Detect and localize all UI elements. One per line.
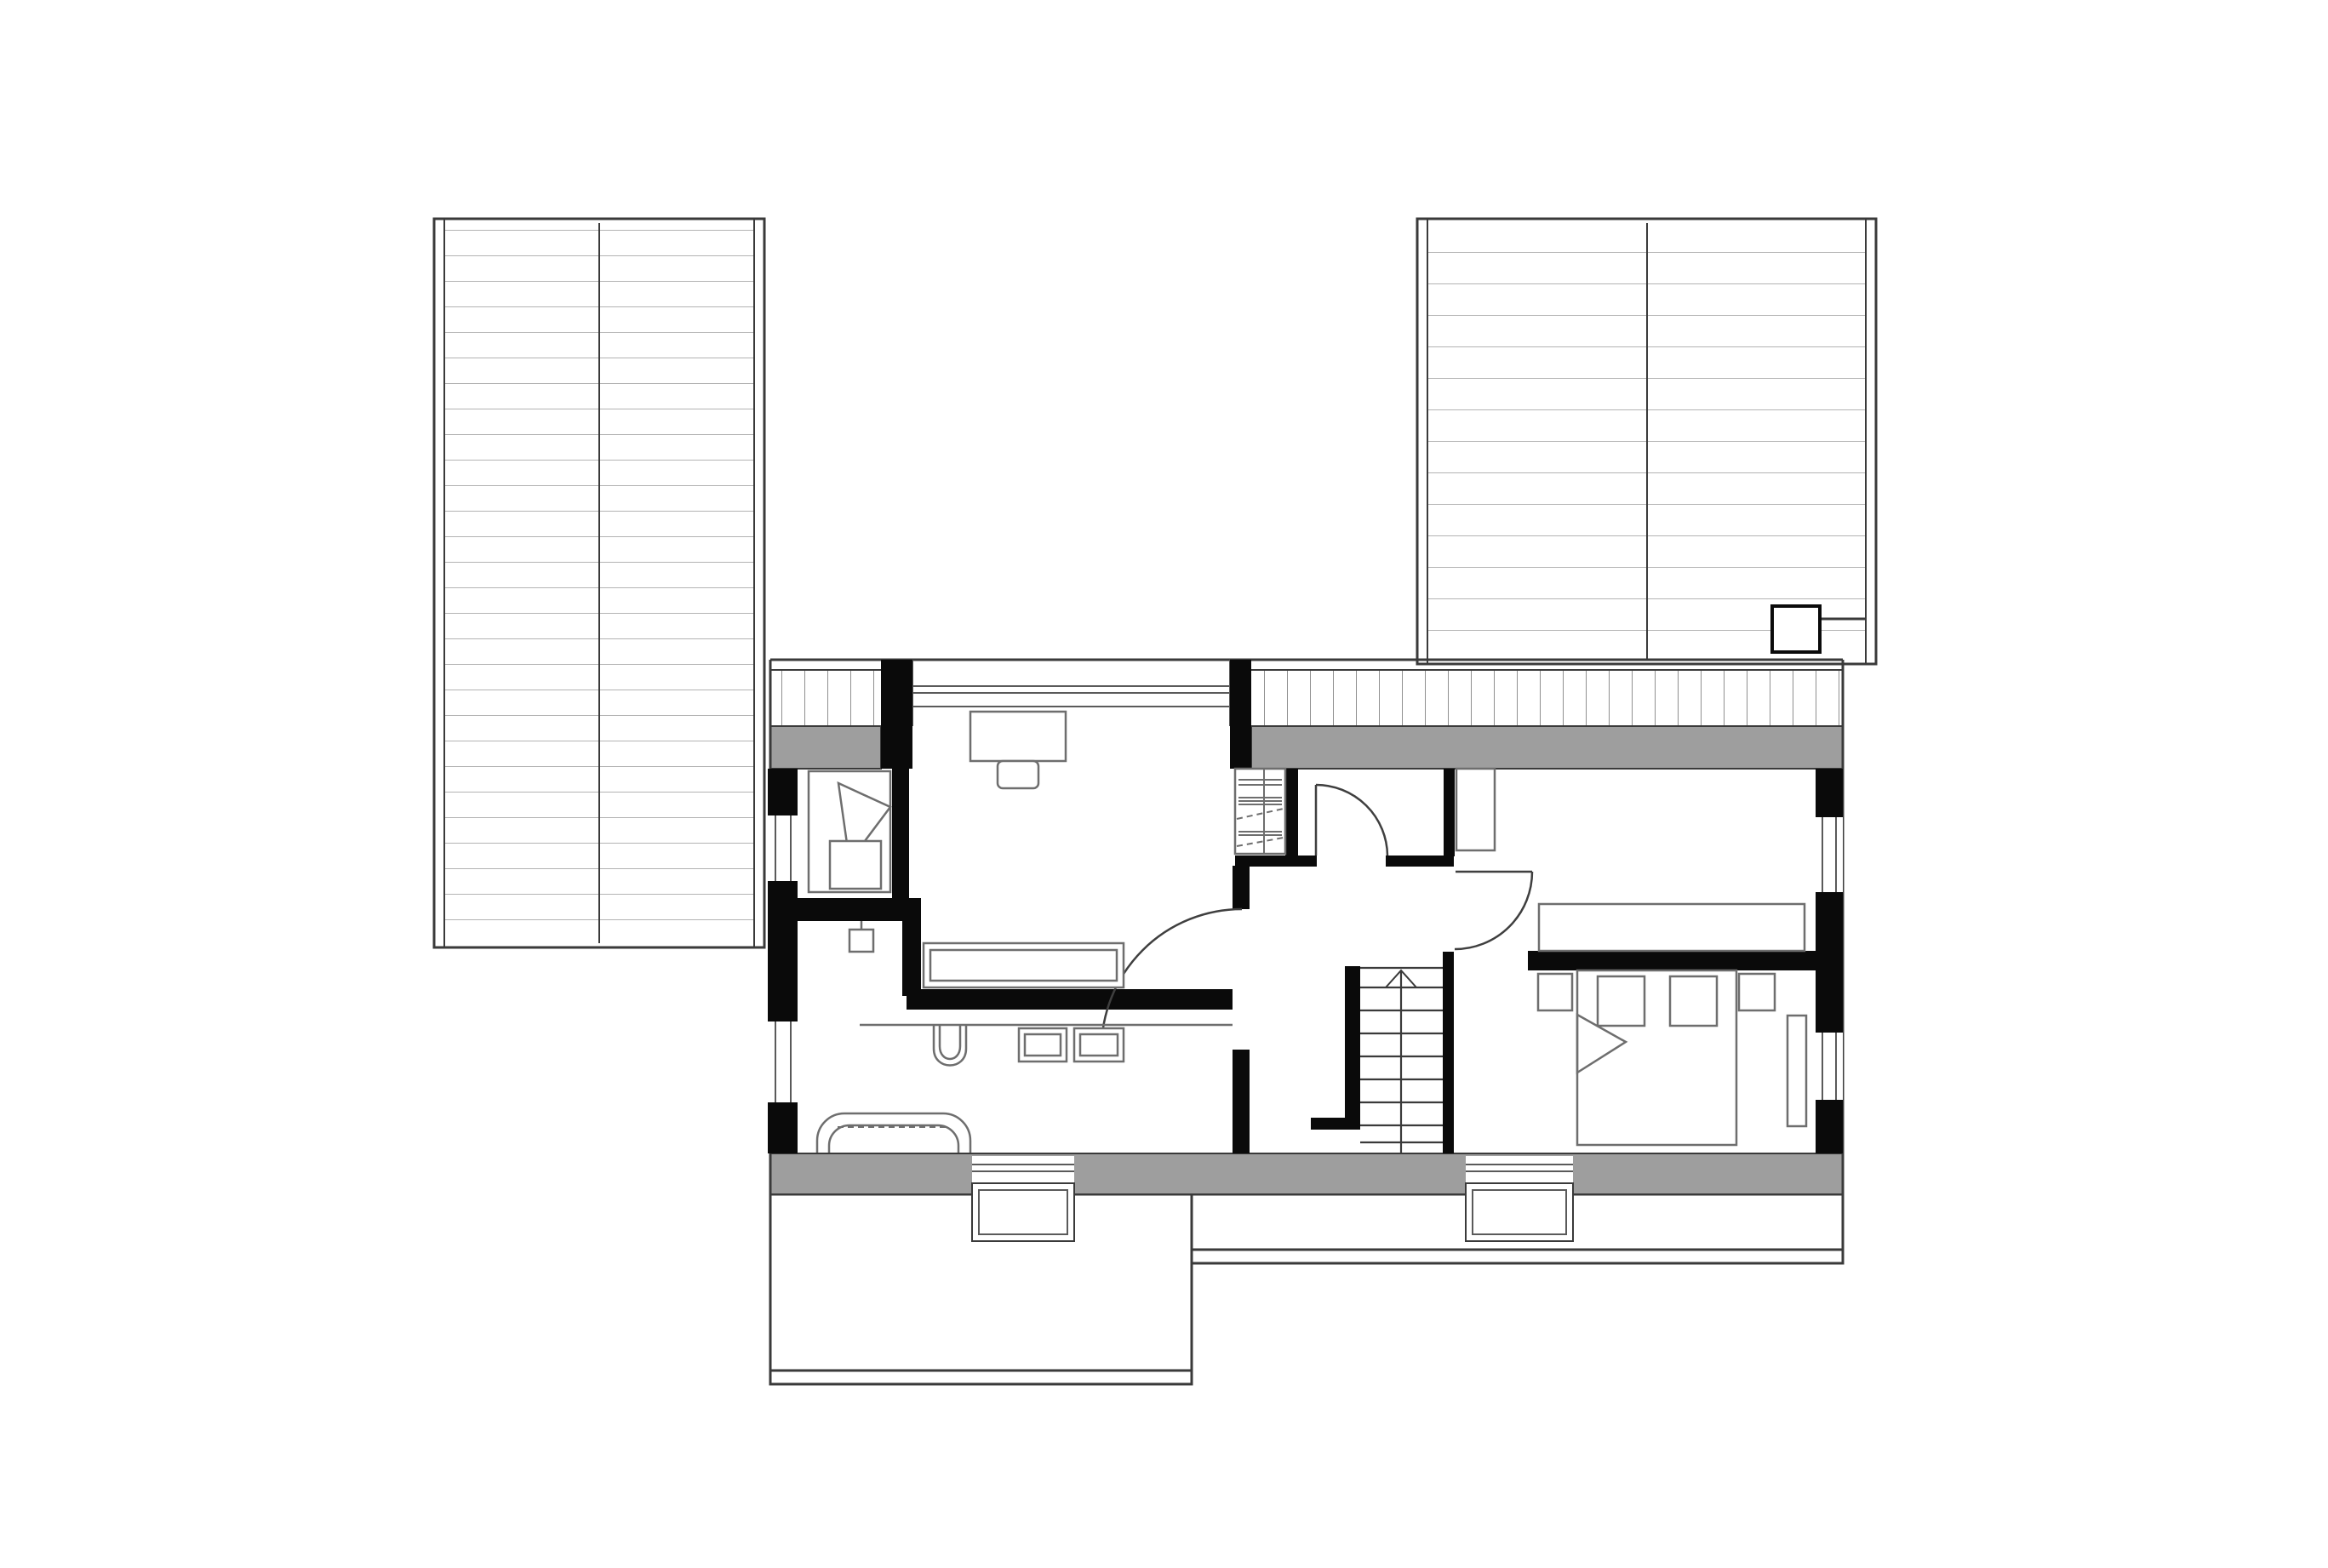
east-wall-segment: [1816, 892, 1843, 1033]
west-window-upper: [768, 815, 798, 881]
east-wall-segment: [1816, 769, 1843, 817]
east-wall-segment: [1816, 1100, 1843, 1153]
window-cut: [768, 815, 798, 881]
dormer-window-right: [1466, 1156, 1573, 1241]
west-window-lower: [768, 1021, 798, 1102]
hall-west-wall-stub-bottom: [1233, 1050, 1250, 1153]
west-wall-segment: [768, 769, 798, 815]
nursery-furniture: [809, 771, 890, 892]
dormer-cut: [972, 1156, 1074, 1241]
north-masonry-right: [1251, 726, 1843, 769]
dormer-window-left: [972, 1156, 1074, 1241]
bathroom-corner-wall: [902, 921, 921, 996]
north-masonry-left: [770, 726, 881, 769]
niche-sill-wall-left: [1235, 856, 1317, 867]
window-cut: [768, 1021, 798, 1102]
west-wall-segment: [768, 881, 798, 1021]
desk-chair: [998, 761, 1038, 788]
bed-box: [830, 841, 881, 889]
niche-east-wall: [1444, 769, 1455, 856]
nursery-study-wall: [892, 769, 909, 898]
stair-wall-left: [1345, 966, 1360, 1124]
hall-west-wall-stub-top: [1233, 866, 1250, 909]
closet-east-wall: [1285, 769, 1298, 856]
desk: [970, 712, 1066, 761]
north-pier-right: [1230, 660, 1251, 769]
niche-sill-wall-right: [1386, 856, 1454, 867]
roof-deck-top-right: [1417, 219, 1876, 664]
bedroom-partition-wall: [1528, 951, 1816, 970]
south-roof-shallow-eave: [1192, 1250, 1843, 1263]
dormer-cut: [1466, 1156, 1573, 1241]
pendant-lamp: [849, 930, 873, 952]
south-roof-deep-eave: [770, 1371, 1192, 1384]
side-table: [1739, 974, 1775, 1010]
nursery-south-wall: [796, 898, 921, 921]
study-south-wall: [907, 989, 1233, 1010]
north-strip-planks-left: [770, 670, 881, 726]
window-cut: [1816, 817, 1843, 892]
north-pier-left: [881, 660, 912, 769]
floor-plan-canvas: [0, 0, 2328, 1568]
chimney-box: [1772, 606, 1820, 652]
west-wall-segment: [768, 1102, 798, 1153]
stair-wall-right: [1443, 952, 1454, 1153]
stair-wall-foot: [1311, 1118, 1360, 1130]
south-masonry: [770, 1153, 1843, 1194]
east-window-lower: [1816, 1033, 1843, 1100]
north-strip-planks-right: [1251, 670, 1843, 726]
hall-wardrobe: [1456, 769, 1495, 850]
roof-deck-top-left: [434, 219, 764, 947]
east-window-upper: [1816, 817, 1843, 892]
window-cut: [1816, 1033, 1843, 1100]
floor-plan-page: { "canvas": { "width": 2735, "height": 1…: [0, 0, 2328, 1568]
nightstand: [1538, 974, 1572, 1010]
long-wardrobe: [1539, 904, 1805, 951]
